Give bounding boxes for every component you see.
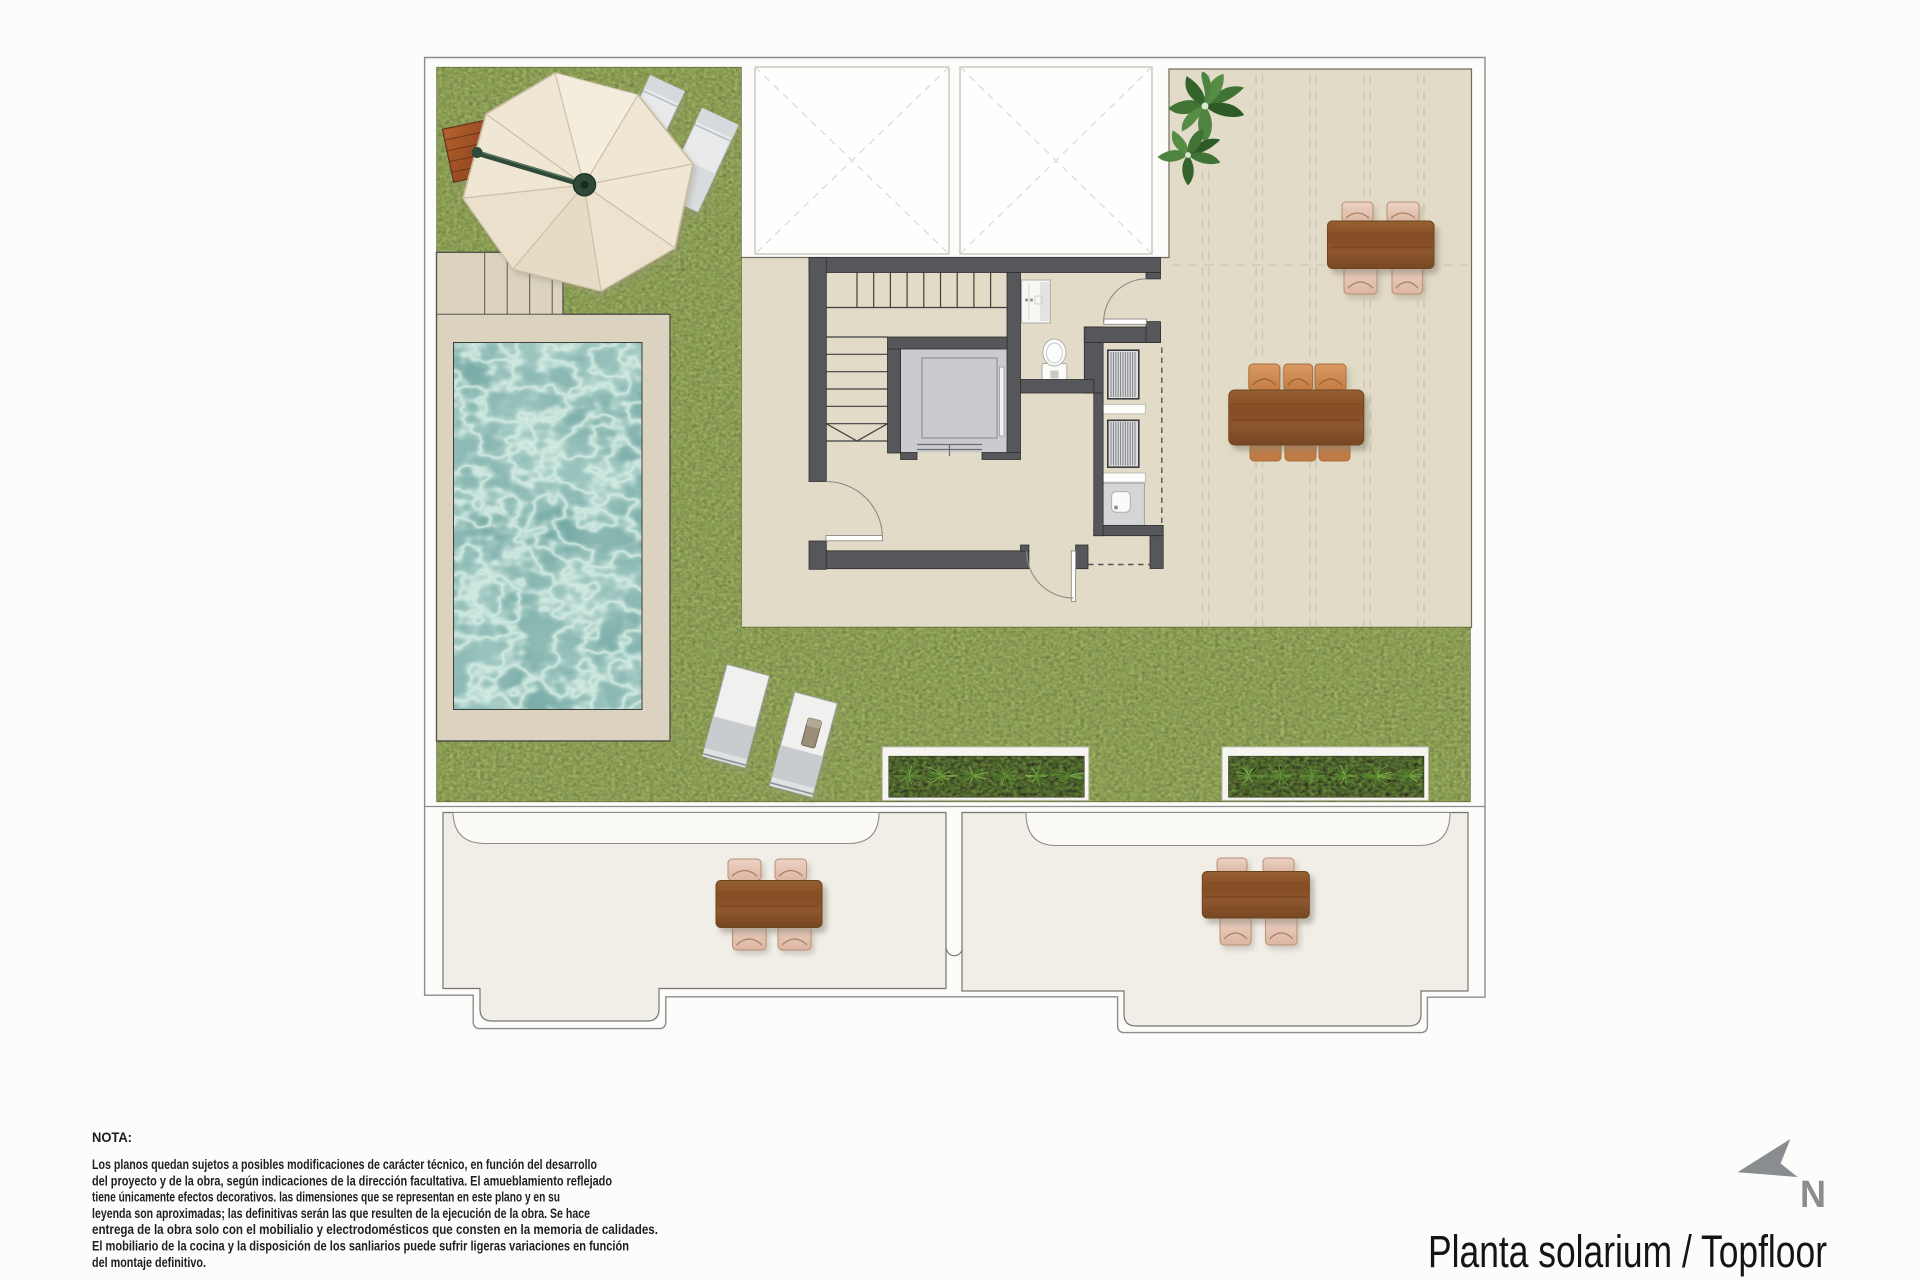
svg-text:N: N bbox=[1800, 1174, 1826, 1216]
svg-text:del montaje definitivo.: del montaje definitivo. bbox=[92, 1255, 206, 1270]
svg-text:tiene únicamente efectos decor: tiene únicamente efectos decorativos. la… bbox=[92, 1190, 560, 1205]
svg-text:Planta solarium / Topfloor: Planta solarium / Topfloor bbox=[1428, 1226, 1827, 1277]
svg-text:Los planos quedan sujetos a po: Los planos quedan sujetos a posibles mod… bbox=[92, 1157, 597, 1172]
svg-text:entrega de la obra solo con el: entrega de la obra solo con el mobiliali… bbox=[92, 1222, 658, 1237]
svg-text:El mobiliario de la cocina y l: El mobiliario de la cocina y la disposic… bbox=[92, 1239, 629, 1254]
svg-text:del proyecto y de la obra, seg: del proyecto y de la obra, según indicac… bbox=[92, 1173, 612, 1188]
svg-text:leyenda son aproximadas; las d: leyenda son aproximadas; las definitivas… bbox=[92, 1206, 590, 1221]
svg-text:NOTA:: NOTA: bbox=[92, 1129, 132, 1145]
